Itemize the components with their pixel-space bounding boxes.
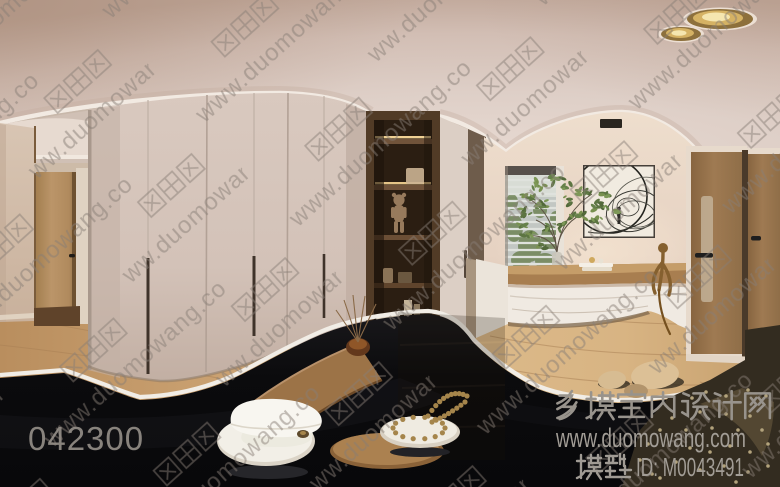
svg-text:042300: 042300 — [28, 420, 144, 457]
svg-text:ID: M0043491: ID: M0043491 — [636, 452, 744, 482]
svg-text:www.duomowang.com: www.duomowang.com — [555, 423, 746, 453]
